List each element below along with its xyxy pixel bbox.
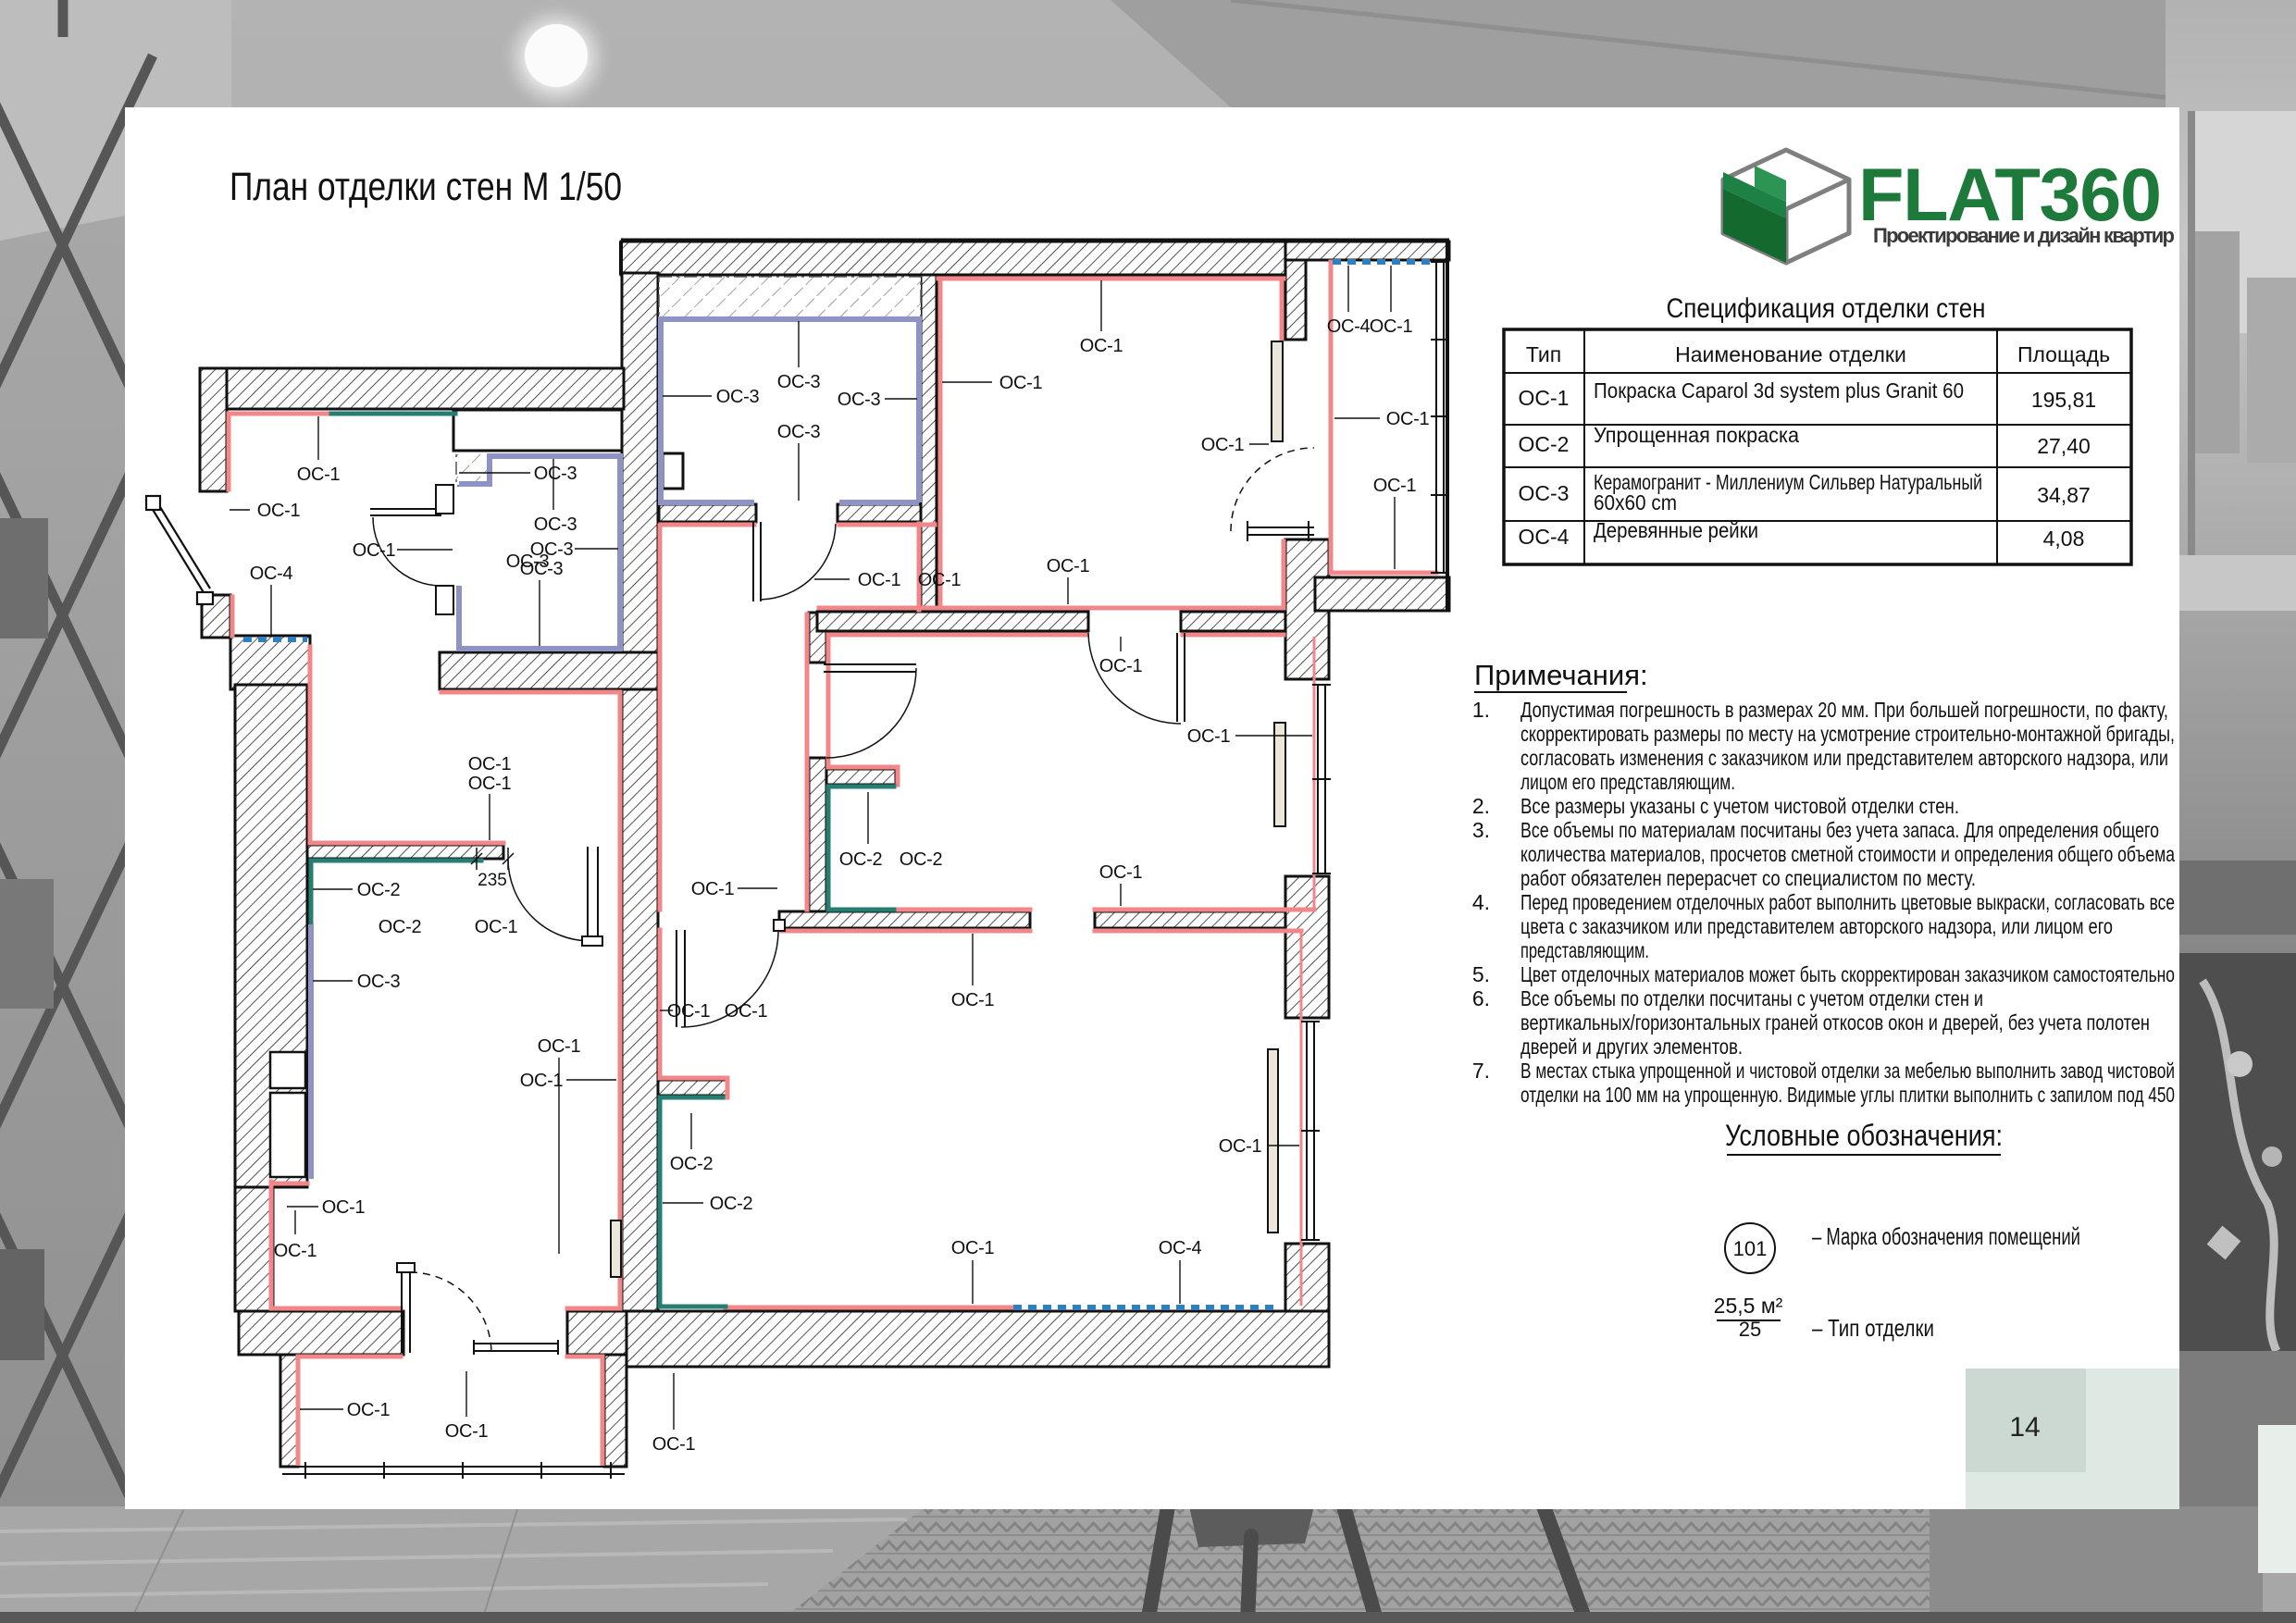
svg-text:ОС-1: ОС-1 [353, 540, 396, 561]
svg-text:План отделки стен М 1/50: План отделки стен М 1/50 [230, 165, 622, 209]
svg-text:235: 235 [478, 871, 507, 890]
svg-text:Наименование отделки: Наименование отделки [1675, 342, 1906, 366]
svg-text:ОС-1: ОС-1 [951, 990, 995, 1010]
svg-text:27,40: 27,40 [2037, 434, 2091, 458]
svg-text:ОС-3: ОС-3 [716, 387, 760, 407]
svg-text:согласовать изменения с заказч: согласовать изменения с заказчиком или п… [1520, 746, 2168, 770]
svg-text:ОС-4: ОС-4 [1327, 316, 1371, 337]
svg-text:Все объемы по отделки посчитан: Все объемы по отделки посчитаны с учетом… [1520, 986, 1983, 1010]
svg-text:4.: 4. [1472, 890, 1490, 914]
svg-text:2.: 2. [1472, 794, 1490, 818]
svg-text:дверей и других элементов.: дверей и других элементов. [1520, 1035, 1743, 1059]
svg-text:ОС-4: ОС-4 [250, 564, 293, 584]
svg-text:ОС-1: ОС-1 [652, 1434, 696, 1455]
svg-text:ОС-3: ОС-3 [777, 372, 821, 392]
svg-text:ОС-1: ОС-1 [691, 879, 735, 899]
svg-text:4,08: 4,08 [2043, 527, 2085, 551]
svg-text:ОС-1: ОС-1 [297, 465, 341, 485]
svg-text:Площадь: Площадь [2017, 342, 2110, 366]
svg-text:ОС-2: ОС-2 [1519, 432, 1570, 456]
svg-text:ОС-1: ОС-1 [858, 570, 901, 590]
svg-text:ОС-1: ОС-1 [951, 1238, 995, 1258]
svg-text:В местах стыка упрощенной и чи: В местах стыка упрощенной и чистовой отд… [1520, 1059, 2175, 1083]
svg-text:Проектирование и дизайн кварти: Проектирование и дизайн квартир [1873, 224, 2175, 247]
svg-text:Спецификация отделки стен: Спецификация отделки стен [1667, 293, 1986, 324]
svg-text:60х60 cm: 60х60 cm [1594, 490, 1677, 514]
svg-text:Примечания:: Примечания: [1474, 659, 1648, 691]
svg-text:отделки на 100 мм на упрощенну: отделки на 100 мм на упрощенную. Видимые… [1520, 1083, 2175, 1107]
svg-text:ОС-3: ОС-3 [838, 390, 881, 410]
svg-text:ОС-3: ОС-3 [1519, 481, 1570, 505]
svg-text:ОС-3: ОС-3 [777, 422, 821, 442]
svg-text:ОС-3: ОС-3 [534, 464, 577, 484]
svg-text:5.: 5. [1472, 962, 1490, 986]
svg-text:ОС-1: ОС-1 [274, 1241, 317, 1261]
svg-text:ОС-2: ОС-2 [900, 849, 943, 870]
svg-text:Все объемы по материалам посчи: Все объемы по материалам посчитаны без у… [1520, 818, 2159, 842]
svg-text:ОС-1: ОС-1 [468, 754, 512, 774]
svg-text:ОС-1: ОС-1 [1099, 862, 1143, 883]
svg-text:ОС-1: ОС-1 [725, 1001, 768, 1022]
svg-text:ОС-1: ОС-1 [1047, 556, 1090, 576]
svg-text:ОС-1: ОС-1 [1373, 476, 1417, 496]
svg-text:цвета с заказчиком или предста: цвета с заказчиком или представителем ав… [1520, 914, 2113, 938]
svg-text:количества материалов, просчет: количества материалов, просчетов сметной… [1520, 842, 2175, 866]
svg-text:скорректировать размеры по мес: скорректировать размеры по месту на усмо… [1520, 722, 2175, 746]
svg-text:ОС-2: ОС-2 [710, 1194, 753, 1214]
svg-text:ОС-1: ОС-1 [999, 373, 1043, 393]
svg-text:ОС-1: ОС-1 [1519, 386, 1570, 410]
svg-text:1.: 1. [1472, 698, 1490, 722]
svg-text:ОС-1: ОС-1 [257, 501, 301, 521]
svg-text:14: 14 [2009, 1412, 2040, 1443]
svg-text:ОС-1: ОС-1 [475, 917, 518, 937]
svg-text:ОС-1: ОС-1 [445, 1421, 489, 1442]
svg-text:Все размеры указаны с учетом ч: Все размеры указаны с учетом чистовой от… [1520, 794, 1959, 818]
svg-text:ОС-1: ОС-1 [468, 774, 512, 794]
svg-text:ОС-1: ОС-1 [520, 1071, 564, 1091]
svg-text:Деревянные рейки: Деревянные рейки [1594, 518, 1758, 542]
svg-text:– Тип отделки: – Тип отделки [1812, 1314, 1934, 1342]
svg-text:ОС-4: ОС-4 [1519, 525, 1570, 549]
svg-text:представляющим.: представляющим. [1520, 938, 1649, 962]
svg-text:ОС-1: ОС-1 [918, 570, 962, 590]
svg-text:101: 101 [1733, 1237, 1768, 1260]
svg-text:ОС-3: ОС-3 [357, 972, 401, 992]
svg-text:Покраска Caparol 3d system plu: Покраска Caparol 3d system plus Granit 6… [1594, 378, 1964, 403]
svg-text:Тип: Тип [1526, 342, 1561, 366]
svg-text:ОС-1: ОС-1 [347, 1400, 391, 1420]
svg-text:34,87: 34,87 [2037, 483, 2091, 507]
svg-text:Цвет отделочных материалов мож: Цвет отделочных материалов может быть ск… [1520, 962, 2175, 986]
svg-text:ОС-3: ОС-3 [520, 559, 564, 579]
svg-text:ОС-3: ОС-3 [534, 514, 577, 535]
svg-text:ОС-1: ОС-1 [538, 1036, 581, 1057]
svg-text:ОС-1: ОС-1 [1099, 656, 1143, 676]
svg-text:Упрощенная покраска: Упрощенная покраска [1594, 423, 1799, 447]
svg-text:3.: 3. [1472, 818, 1490, 842]
svg-text:ОС-1: ОС-1 [1080, 336, 1123, 356]
svg-text:вертикальных/горизонтальных гр: вертикальных/горизонтальных граней откос… [1520, 1010, 2150, 1035]
svg-text:25,5 м²: 25,5 м² [1714, 1294, 1783, 1318]
svg-text:Допустимая погрешность в разме: Допустимая погрешность в размерах 20 мм.… [1520, 698, 2168, 722]
svg-text:ОС-1: ОС-1 [1187, 726, 1231, 747]
svg-text:ОС-1: ОС-1 [667, 1001, 711, 1022]
svg-text:195,81: 195,81 [2031, 388, 2096, 412]
svg-text:7.: 7. [1472, 1059, 1490, 1083]
svg-text:ОС-2: ОС-2 [357, 880, 401, 900]
svg-text:– Марка обозначения помещений: – Марка обозначения помещений [1812, 1222, 2080, 1250]
svg-text:Перед проведением отделочных р: Перед проведением отделочных работ выпол… [1520, 890, 2175, 914]
svg-text:лицом его представляющим.: лицом его представляющим. [1520, 770, 1735, 794]
svg-text:ОС-1: ОС-1 [1219, 1136, 1262, 1157]
svg-text:25: 25 [1739, 1318, 1761, 1341]
svg-text:ОС-1: ОС-1 [1386, 409, 1430, 429]
svg-text:ОС-1: ОС-1 [1370, 316, 1413, 337]
svg-text:ОС-2: ОС-2 [379, 917, 422, 937]
svg-text:ОС-1: ОС-1 [1201, 435, 1245, 455]
svg-text:работ обязателен перерасчет со: работ обязателен перерасчет со специалис… [1520, 866, 1976, 890]
svg-text:ОС-2: ОС-2 [670, 1154, 714, 1174]
svg-text:6.: 6. [1472, 986, 1490, 1010]
svg-text:ОС-1: ОС-1 [322, 1197, 366, 1218]
svg-text:ОС-4: ОС-4 [1159, 1238, 1202, 1258]
svg-text:ОС-2: ОС-2 [839, 849, 883, 870]
svg-text:Условные обозначения:: Условные обозначения: [1725, 1119, 2003, 1152]
